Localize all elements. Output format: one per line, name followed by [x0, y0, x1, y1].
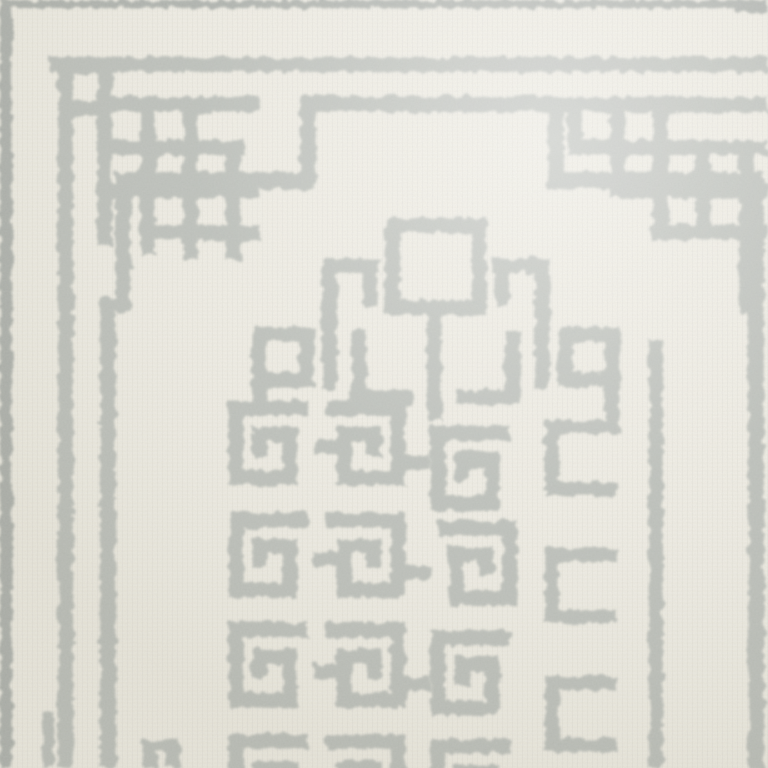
rug-photo: Close-up corner detail of a hand-tufted …: [0, 0, 768, 768]
fiber-grain-light: [0, 0, 768, 768]
rug-artwork: [0, 0, 768, 768]
